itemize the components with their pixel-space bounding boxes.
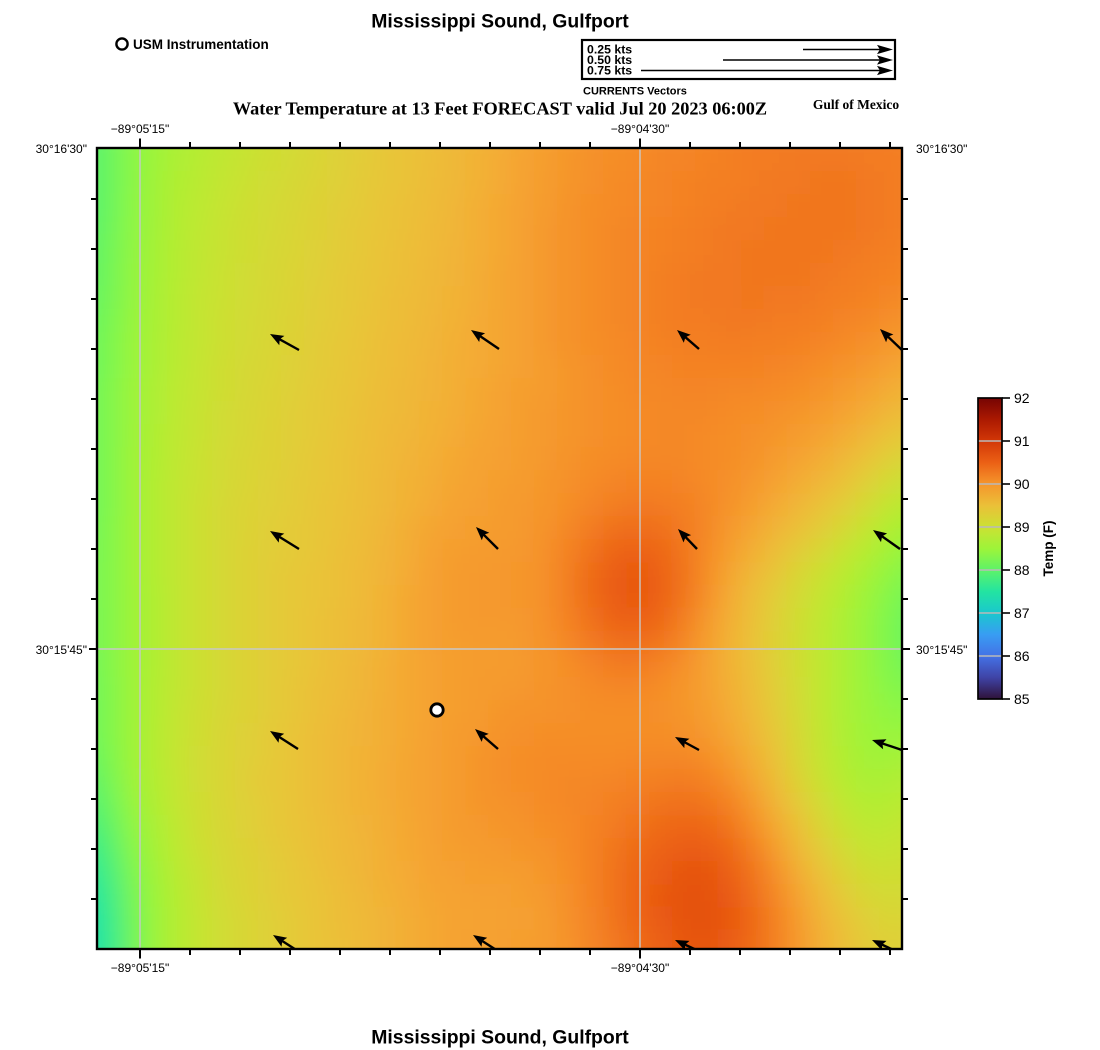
svg-text:88: 88 [1014, 562, 1030, 578]
svg-text:−89°04'30": −89°04'30" [611, 961, 669, 975]
svg-text:CURRENTS Vectors: CURRENTS Vectors [583, 86, 687, 98]
svg-text:Temp (F): Temp (F) [1041, 521, 1056, 577]
svg-text:30°16'30": 30°16'30" [36, 142, 87, 156]
svg-text:−89°04'30": −89°04'30" [611, 122, 669, 136]
svg-text:86: 86 [1014, 648, 1030, 664]
svg-text:92: 92 [1014, 390, 1030, 406]
svg-text:Mississippi Sound, Gulfport: Mississippi Sound, Gulfport [371, 1027, 629, 1049]
svg-text:Gulf of Mexico: Gulf of Mexico [813, 97, 899, 112]
svg-text:91: 91 [1014, 433, 1030, 449]
svg-text:0.75 kts: 0.75 kts [587, 64, 632, 78]
svg-text:−89°05'15": −89°05'15" [111, 122, 169, 136]
svg-text:30°15'45": 30°15'45" [916, 643, 967, 657]
svg-text:−89°05'15": −89°05'15" [111, 961, 169, 975]
svg-text:USM Instrumentation: USM Instrumentation [133, 37, 269, 52]
svg-text:30°16'30": 30°16'30" [916, 142, 967, 156]
svg-text:Water Temperature at 13 Feet F: Water Temperature at 13 Feet FORECAST va… [233, 99, 767, 119]
svg-text:Mississippi Sound, Gulfport: Mississippi Sound, Gulfport [371, 11, 629, 33]
svg-text:85: 85 [1014, 691, 1030, 707]
svg-text:87: 87 [1014, 605, 1030, 621]
svg-text:90: 90 [1014, 476, 1030, 492]
svg-text:89: 89 [1014, 519, 1030, 535]
svg-text:30°15'45": 30°15'45" [36, 643, 87, 657]
